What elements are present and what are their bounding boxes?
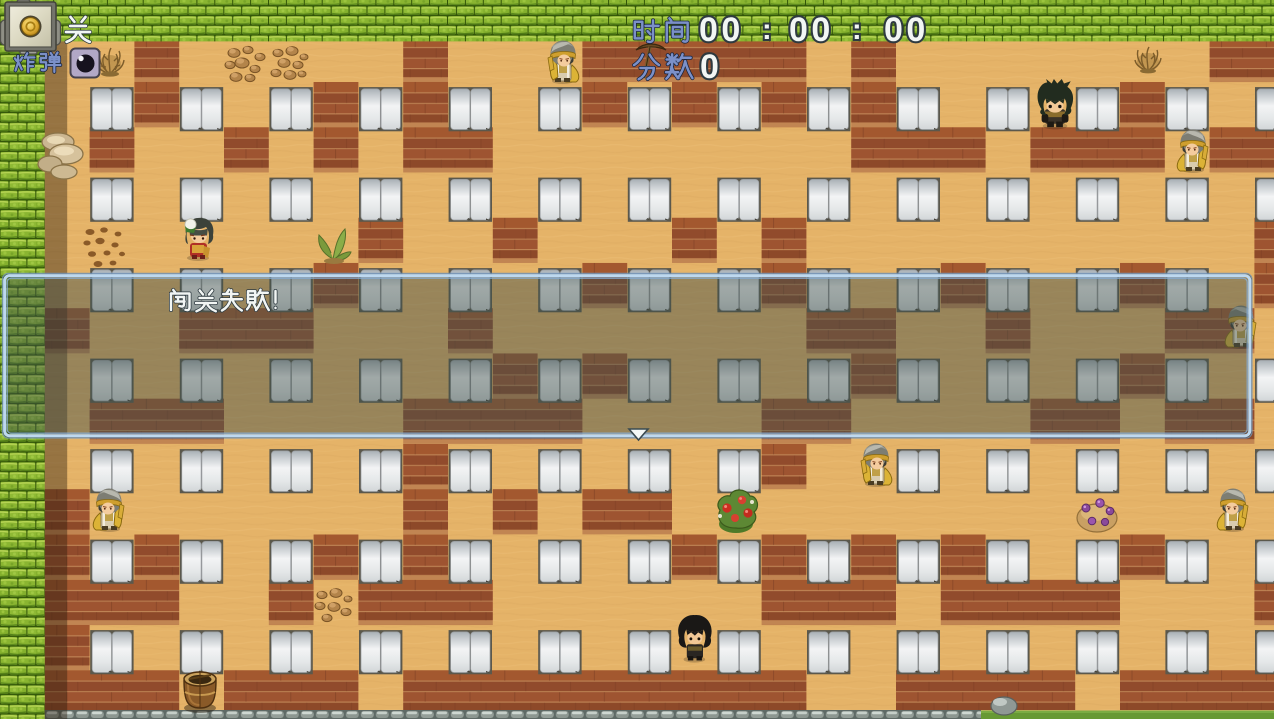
svg-text:00: 00 — [884, 11, 929, 49]
svg-text:0: 0 — [700, 48, 719, 86]
svg-text::: : — [852, 14, 862, 46]
svg-text::: : — [762, 14, 772, 46]
svg-text:00: 00 — [699, 11, 744, 49]
svg-text:00: 00 — [789, 11, 834, 49]
